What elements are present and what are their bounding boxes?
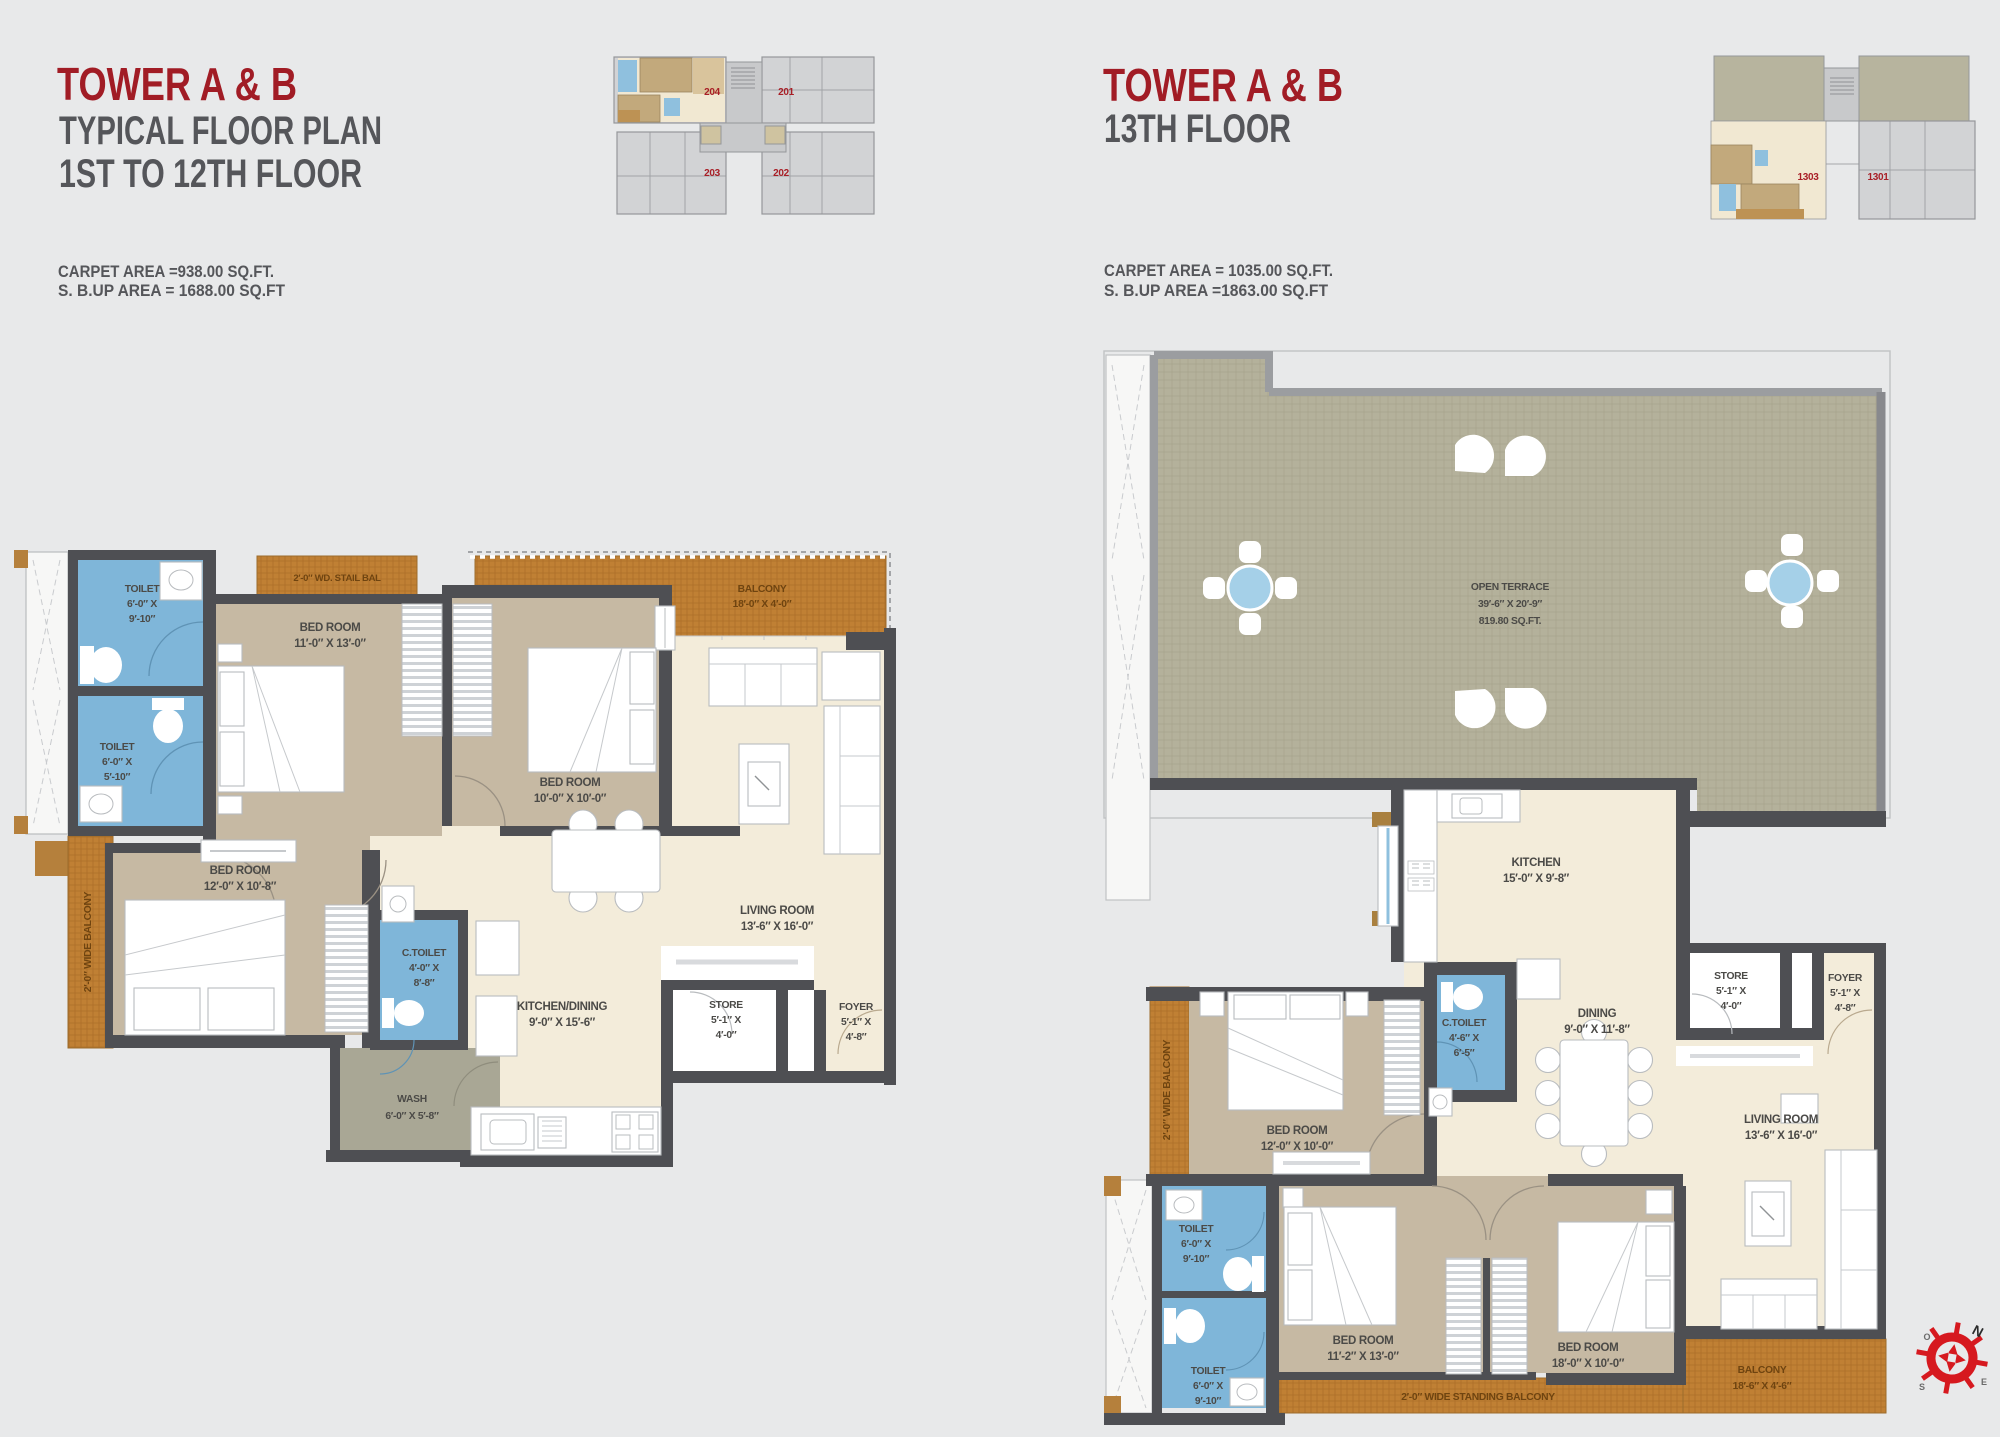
svg-text:13TH FLOOR: 13TH FLOOR: [1104, 107, 1291, 151]
svg-text:202: 202: [773, 168, 790, 179]
svg-text:4′-8″: 4′-8″: [1835, 1003, 1856, 1014]
svg-text:BED ROOM: BED ROOM: [300, 622, 361, 634]
svg-text:6′-0″ X: 6′-0″ X: [1181, 1239, 1211, 1250]
svg-text:BED ROOM: BED ROOM: [1333, 1335, 1394, 1347]
svg-text:39′-6″ X 20′-9″: 39′-6″ X 20′-9″: [1478, 599, 1542, 610]
svg-text:11′-2″ X 13′-0″: 11′-2″ X 13′-0″: [1327, 1351, 1399, 1363]
svg-text:5′-10″: 5′-10″: [104, 772, 131, 783]
svg-text:1ST TO 12TH FLOOR: 1ST TO 12TH FLOOR: [59, 152, 362, 196]
svg-text:S. B.UP AREA =1863.00 SQ.FT: S. B.UP AREA =1863.00 SQ.FT: [1104, 282, 1328, 300]
svg-text:11′-0″ X 13′-0″: 11′-0″ X 13′-0″: [294, 638, 366, 650]
svg-text:LIVING ROOM: LIVING ROOM: [740, 905, 814, 917]
svg-text:LIVING ROOM: LIVING ROOM: [1744, 1114, 1818, 1126]
svg-text:C.TOILET: C.TOILET: [402, 948, 447, 959]
svg-text:CARPET AREA =938.00 SQ.FT.: CARPET AREA =938.00 SQ.FT.: [58, 263, 274, 281]
svg-text:9′-0″ X 15′-6″: 9′-0″ X 15′-6″: [529, 1017, 596, 1029]
svg-text:18′-6″ X 4′-6″: 18′-6″ X 4′-6″: [1733, 1381, 1792, 1392]
svg-text:6′-0″ X 5′-8″: 6′-0″ X 5′-8″: [385, 1111, 439, 1122]
svg-text:TOILET: TOILET: [1179, 1224, 1215, 1235]
svg-text:6′-0″ X: 6′-0″ X: [127, 599, 157, 610]
svg-text:CARPET AREA = 1035.00 SQ.FT.: CARPET AREA = 1035.00 SQ.FT.: [1104, 262, 1333, 280]
svg-text:4′-6″ X: 4′-6″ X: [1449, 1033, 1479, 1044]
svg-text:18′-0″ X 4′-0″: 18′-0″ X 4′-0″: [733, 599, 792, 610]
svg-text:13′-6″ X 16′-0″: 13′-6″ X 16′-0″: [741, 921, 814, 933]
svg-text:5′-1″ X: 5′-1″ X: [841, 1017, 871, 1028]
svg-text:12′-0″ X 10′-0″: 12′-0″ X 10′-0″: [1261, 1141, 1334, 1153]
svg-text:C.TOILET: C.TOILET: [1442, 1018, 1487, 1029]
svg-text:S: S: [1919, 1382, 1925, 1392]
svg-text:15′-0″ X 9′-8″: 15′-0″ X 9′-8″: [1503, 873, 1570, 885]
svg-text:204: 204: [704, 87, 721, 98]
svg-text:6′-0″ X: 6′-0″ X: [102, 757, 132, 768]
svg-text:9′-10″: 9′-10″: [1195, 1396, 1222, 1407]
svg-text:5′-1″ X: 5′-1″ X: [711, 1015, 741, 1026]
svg-text:9′-0″ X 11′-8″: 9′-0″ X 11′-8″: [1564, 1024, 1630, 1036]
svg-text:5′-1″ X: 5′-1″ X: [1716, 986, 1746, 997]
svg-text:201: 201: [778, 87, 795, 98]
svg-text:4′-0″: 4′-0″: [1721, 1001, 1742, 1012]
svg-text:12′-0″ X 10′-8″: 12′-0″ X 10′-8″: [204, 881, 277, 893]
svg-text:FOYER: FOYER: [1828, 973, 1863, 984]
svg-text:WASH: WASH: [397, 1094, 427, 1105]
svg-text:4′-0″: 4′-0″: [716, 1030, 737, 1041]
svg-text:BED ROOM: BED ROOM: [540, 777, 601, 789]
svg-text:BALCONY: BALCONY: [1738, 1365, 1787, 1376]
svg-text:BALCONY: BALCONY: [738, 584, 787, 595]
svg-text:DINING: DINING: [1578, 1008, 1617, 1020]
svg-text:FOYER: FOYER: [839, 1002, 874, 1013]
svg-text:9′-10″: 9′-10″: [1183, 1254, 1210, 1265]
svg-text:STORE: STORE: [709, 1000, 743, 1011]
svg-text:6′-0″ X: 6′-0″ X: [1193, 1381, 1223, 1392]
svg-text:TYPICAL FLOOR PLAN: TYPICAL FLOOR PLAN: [59, 109, 382, 153]
svg-text:2′-0″ WD. STAIL BAL: 2′-0″ WD. STAIL BAL: [293, 573, 381, 584]
svg-text:KITCHEN: KITCHEN: [1511, 857, 1560, 869]
svg-text:8′-8″: 8′-8″: [414, 978, 435, 989]
svg-text:STORE: STORE: [1714, 971, 1748, 982]
svg-text:13′-6″ X 16′-0″: 13′-6″ X 16′-0″: [1745, 1130, 1818, 1142]
svg-text:TOILET: TOILET: [1191, 1366, 1227, 1377]
svg-text:S. B.UP AREA = 1688.00 SQ.FT: S. B.UP AREA = 1688.00 SQ.FT: [58, 282, 285, 300]
svg-text:BED ROOM: BED ROOM: [1558, 1342, 1619, 1354]
svg-text:4′-8″: 4′-8″: [846, 1032, 867, 1043]
svg-text:O: O: [1923, 1332, 1930, 1342]
svg-text:10′-0″ X 10′-0″: 10′-0″ X 10′-0″: [534, 793, 607, 805]
svg-text:TOWER A & B: TOWER A & B: [1103, 59, 1343, 111]
svg-text:2′-0″ WIDE BALCONY: 2′-0″ WIDE BALCONY: [1162, 1039, 1173, 1140]
svg-text:2′-0″ WIDE STANDING BALCONY: 2′-0″ WIDE STANDING BALCONY: [1401, 1392, 1555, 1403]
svg-text:BED ROOM: BED ROOM: [210, 865, 271, 877]
svg-text:OPEN TERRACE: OPEN TERRACE: [1471, 582, 1550, 593]
svg-text:TOILET: TOILET: [125, 584, 161, 595]
svg-text:BED ROOM: BED ROOM: [1267, 1125, 1328, 1137]
svg-text:2′-0″ WIDE BALCONY: 2′-0″ WIDE BALCONY: [83, 891, 94, 992]
svg-text:1303: 1303: [1797, 172, 1819, 183]
svg-text:TOWER A & B: TOWER A & B: [57, 58, 297, 110]
svg-text:1301: 1301: [1867, 172, 1889, 183]
svg-text:TOILET: TOILET: [100, 742, 136, 753]
svg-text:4′-0″ X: 4′-0″ X: [409, 963, 439, 974]
svg-text:18′-0″ X 10′-0″: 18′-0″ X 10′-0″: [1552, 1358, 1625, 1370]
svg-text:203: 203: [704, 168, 721, 179]
svg-text:9′-10″: 9′-10″: [129, 614, 156, 625]
svg-text:KITCHEN/DINING: KITCHEN/DINING: [517, 1001, 608, 1013]
svg-text:819.80 SQ.FT.: 819.80 SQ.FT.: [1479, 616, 1542, 627]
svg-text:6′-5″: 6′-5″: [1454, 1048, 1475, 1059]
svg-text:5′-1″ X: 5′-1″ X: [1830, 988, 1860, 999]
svg-text:E: E: [1981, 1377, 1987, 1387]
